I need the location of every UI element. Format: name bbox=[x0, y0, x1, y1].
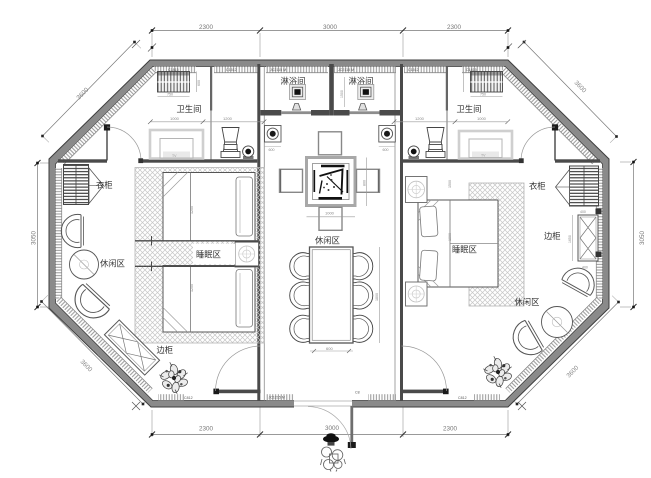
svg-text:2300: 2300 bbox=[447, 24, 462, 31]
svg-text:C812: C812 bbox=[184, 396, 193, 400]
svg-text:3600: 3600 bbox=[75, 86, 90, 101]
svg-text:C8: C8 bbox=[355, 391, 360, 395]
svg-text:1200: 1200 bbox=[190, 284, 194, 292]
svg-text:1800: 1800 bbox=[448, 233, 452, 241]
svg-text:1500: 1500 bbox=[448, 180, 452, 188]
svg-text:衣柜: 衣柜 bbox=[96, 180, 113, 190]
svg-text:C1512: C1512 bbox=[226, 68, 237, 72]
svg-text:TV: TV bbox=[172, 154, 177, 158]
svg-text:卫生间: 卫生间 bbox=[177, 104, 202, 114]
svg-text:2300: 2300 bbox=[443, 426, 458, 433]
svg-text:JC1215 M: JC1215 M bbox=[269, 396, 285, 400]
svg-text:卫生间: 卫生间 bbox=[457, 104, 482, 114]
svg-text:1200: 1200 bbox=[223, 116, 233, 121]
svg-text:睡眠区: 睡眠区 bbox=[452, 245, 477, 255]
svg-text:3600: 3600 bbox=[79, 358, 94, 373]
svg-text:400: 400 bbox=[580, 210, 586, 214]
svg-text:3050: 3050 bbox=[639, 230, 646, 245]
svg-text:600: 600 bbox=[326, 346, 333, 351]
svg-text:1500: 1500 bbox=[340, 90, 344, 98]
svg-text:3000: 3000 bbox=[323, 24, 338, 31]
svg-text:衣柜: 衣柜 bbox=[529, 181, 546, 191]
svg-text:C812: C812 bbox=[458, 396, 467, 400]
svg-text:3600: 3600 bbox=[573, 79, 588, 94]
svg-text:边柜: 边柜 bbox=[157, 345, 174, 355]
svg-text:750: 750 bbox=[480, 93, 486, 97]
svg-text:边柜: 边柜 bbox=[544, 231, 561, 241]
svg-text:2300: 2300 bbox=[199, 24, 214, 31]
svg-text:600: 600 bbox=[383, 148, 389, 152]
svg-text:800: 800 bbox=[362, 180, 366, 186]
svg-text:1000: 1000 bbox=[170, 116, 180, 121]
svg-text:休闲区: 休闲区 bbox=[315, 236, 340, 246]
svg-text:3000: 3000 bbox=[325, 425, 340, 432]
svg-text:C1512: C1512 bbox=[408, 68, 419, 72]
svg-text:1650: 1650 bbox=[568, 235, 572, 243]
svg-text:3050: 3050 bbox=[31, 230, 38, 245]
svg-text:TV: TV bbox=[481, 154, 486, 158]
svg-text:JC2115 M: JC2115 M bbox=[270, 68, 286, 72]
svg-text:休闲区: 休闲区 bbox=[100, 259, 125, 269]
svg-text:1000: 1000 bbox=[477, 116, 487, 121]
svg-text:睡眠区: 睡眠区 bbox=[196, 250, 221, 260]
svg-text:1200: 1200 bbox=[190, 206, 194, 214]
svg-text:1000: 1000 bbox=[325, 211, 335, 216]
svg-text:JC2115 M: JC2115 M bbox=[338, 68, 354, 72]
svg-text:600: 600 bbox=[269, 148, 275, 152]
svg-text:600: 600 bbox=[197, 80, 201, 86]
svg-text:2300: 2300 bbox=[199, 426, 214, 433]
svg-text:3600: 3600 bbox=[565, 364, 580, 379]
svg-text:休闲区: 休闲区 bbox=[515, 297, 540, 307]
svg-text:1800: 1800 bbox=[375, 293, 379, 301]
svg-text:750: 750 bbox=[167, 93, 173, 97]
svg-text:1200: 1200 bbox=[415, 116, 425, 121]
